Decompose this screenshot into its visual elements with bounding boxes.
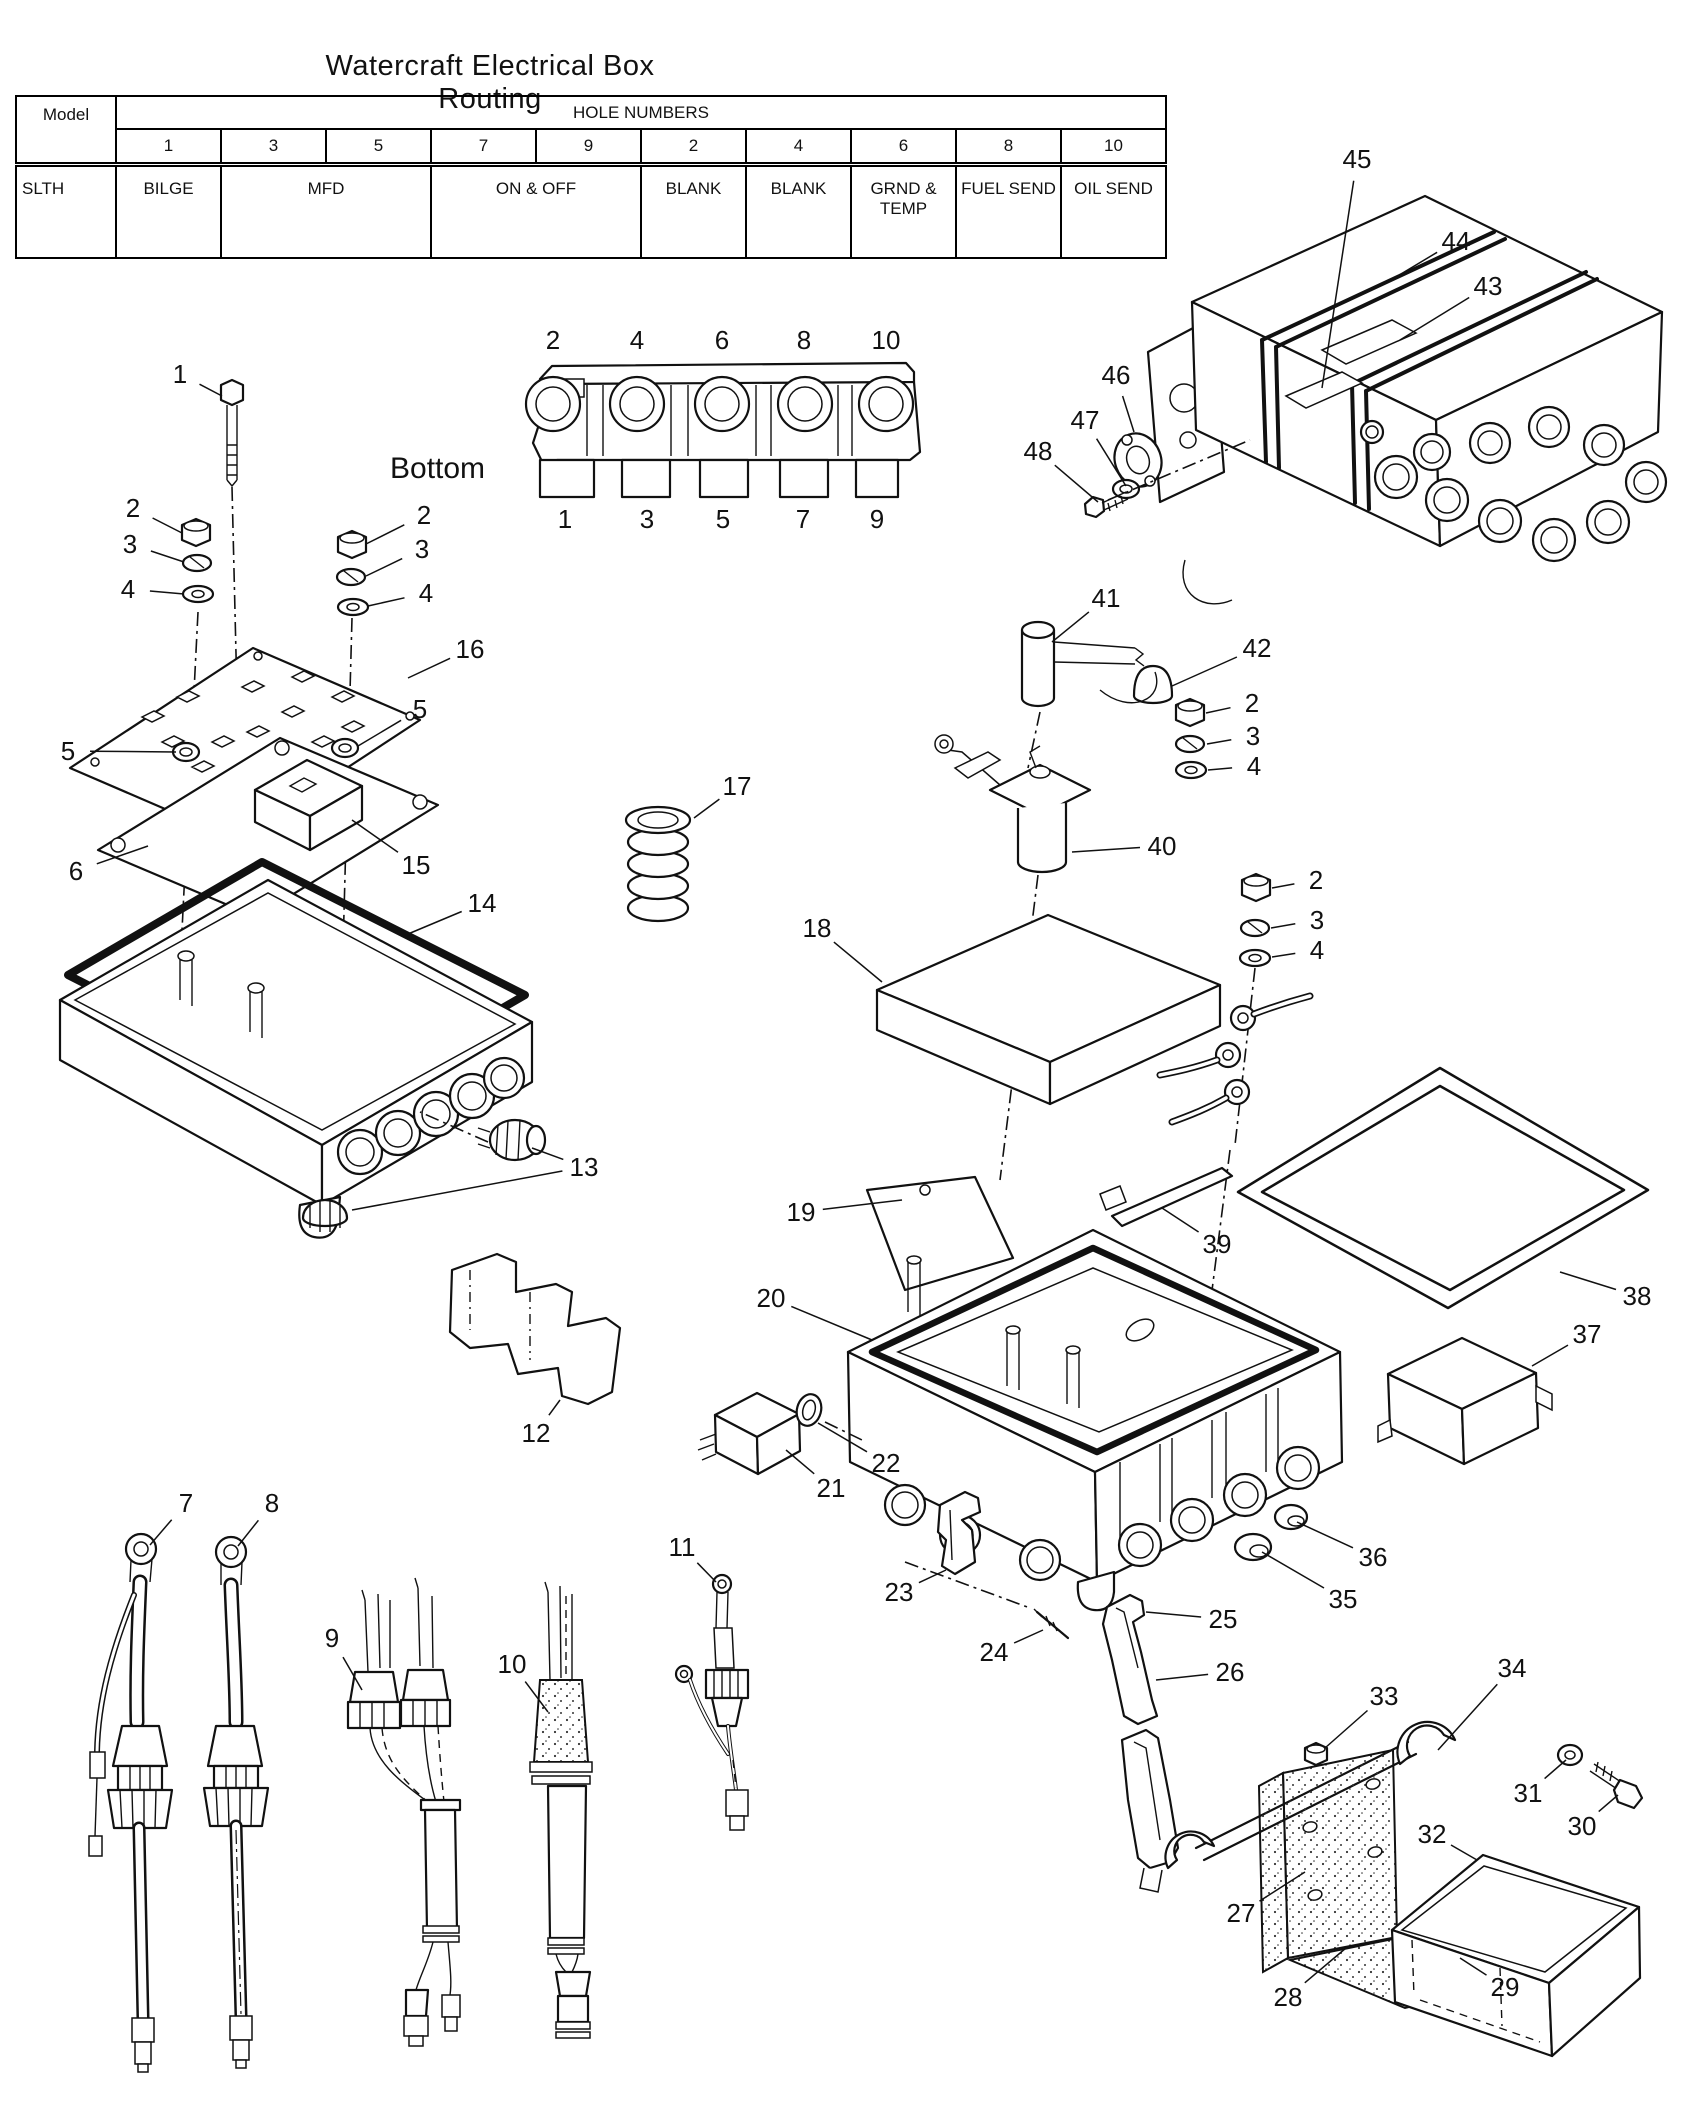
callout-2: 2 bbox=[1245, 688, 1259, 718]
leader-line bbox=[1438, 1684, 1497, 1750]
callout-22: 22 bbox=[872, 1448, 901, 1478]
callout-10: 10 bbox=[498, 1649, 527, 1679]
bottom-view-hole-7: 7 bbox=[796, 504, 810, 534]
callout-2: 2 bbox=[126, 493, 140, 523]
cables-group bbox=[89, 1534, 748, 2072]
callout-12: 12 bbox=[522, 1418, 551, 1448]
callout-6: 6 bbox=[69, 856, 83, 886]
nut-33 bbox=[1305, 1743, 1327, 1765]
callout-32: 32 bbox=[1418, 1819, 1447, 1849]
callout-26: 26 bbox=[1216, 1657, 1245, 1687]
leader-line bbox=[786, 1450, 814, 1474]
exploded-diagram: Bottom 24681013579 bbox=[0, 0, 1700, 2111]
callout-24: 24 bbox=[980, 1637, 1009, 1667]
leader-line bbox=[1052, 612, 1089, 642]
callout-42: 42 bbox=[1243, 633, 1272, 663]
callout-13: 13 bbox=[570, 1152, 599, 1182]
callout-17: 17 bbox=[723, 771, 752, 801]
nut-washer-stack-c bbox=[1176, 699, 1206, 778]
bottom-view-label: Bottom bbox=[390, 452, 485, 485]
callout-34: 34 bbox=[1498, 1653, 1527, 1683]
callout-2: 2 bbox=[1309, 865, 1323, 895]
callout-11: 11 bbox=[669, 1532, 696, 1562]
callout-19: 19 bbox=[787, 1197, 816, 1227]
callout-44: 44 bbox=[1442, 226, 1471, 256]
bottom-view-hole-3: 3 bbox=[640, 504, 654, 534]
callout-46: 46 bbox=[1102, 360, 1131, 390]
callout-33: 33 bbox=[1370, 1681, 1399, 1711]
leader-line bbox=[150, 1520, 172, 1545]
callout-48: 48 bbox=[1024, 436, 1053, 466]
callout-14: 14 bbox=[468, 888, 497, 918]
bottom-view-hole-6: 6 bbox=[715, 325, 729, 355]
box-bracket-hook bbox=[1183, 560, 1232, 604]
leader-line bbox=[1208, 768, 1232, 770]
callout-21: 21 bbox=[817, 1473, 846, 1503]
leader-line bbox=[834, 942, 882, 982]
leader-line bbox=[1207, 740, 1231, 744]
bottom-view-hole-2: 2 bbox=[546, 325, 560, 355]
bellows-17 bbox=[626, 807, 690, 921]
callout-4: 4 bbox=[419, 578, 433, 608]
callout-30: 30 bbox=[1568, 1811, 1597, 1841]
grommet-5-left bbox=[173, 743, 199, 761]
leader-line bbox=[90, 751, 176, 752]
bracket-12 bbox=[450, 1254, 620, 1404]
callout-8: 8 bbox=[265, 1488, 279, 1518]
leader-line bbox=[1599, 1795, 1618, 1812]
washer-31 bbox=[1558, 1745, 1582, 1765]
callout-27: 27 bbox=[1227, 1898, 1256, 1928]
leader-line bbox=[408, 912, 462, 935]
leader-line bbox=[1172, 657, 1237, 686]
bolt-1 bbox=[221, 380, 243, 486]
pcb-exploded-group bbox=[60, 380, 620, 1404]
solenoid-40 bbox=[935, 735, 1090, 872]
bottom-view-hole-5: 5 bbox=[716, 504, 730, 534]
callout-5: 5 bbox=[61, 736, 75, 766]
lid-gasket-38 bbox=[1238, 1068, 1648, 1308]
bolt-30 bbox=[1590, 1762, 1642, 1808]
diagram-page: Watercraft Electrical Box Routing Model … bbox=[0, 0, 1700, 2111]
strap-25 bbox=[1103, 1595, 1157, 1724]
knob-13a bbox=[478, 1120, 545, 1160]
leader-line bbox=[366, 525, 404, 544]
leader-line bbox=[153, 518, 182, 533]
callout-40: 40 bbox=[1148, 831, 1177, 861]
bottom-view-hole-1: 1 bbox=[558, 504, 572, 534]
callout-41: 41 bbox=[1092, 583, 1121, 613]
callout-7: 7 bbox=[179, 1488, 193, 1518]
plug-36 bbox=[1275, 1505, 1307, 1529]
cdi-box-37 bbox=[1378, 1338, 1552, 1464]
leader-line bbox=[1545, 1760, 1566, 1779]
leader-line bbox=[366, 559, 402, 576]
leader-line bbox=[1271, 924, 1295, 928]
bottom-view-hole-9: 9 bbox=[870, 504, 884, 534]
callout-36: 36 bbox=[1359, 1542, 1388, 1572]
callout-3: 3 bbox=[1310, 905, 1324, 935]
leader-line bbox=[1451, 1845, 1477, 1860]
callout-9: 9 bbox=[325, 1623, 339, 1653]
leader-line bbox=[150, 591, 184, 594]
callout-4: 4 bbox=[1247, 751, 1261, 781]
leader-line bbox=[408, 658, 450, 678]
plug-35 bbox=[1235, 1534, 1271, 1560]
battery-cable-8 bbox=[204, 1537, 268, 2068]
callout-31: 31 bbox=[1514, 1778, 1543, 1808]
cover-plate-19 bbox=[867, 1177, 1013, 1290]
nut-washer-stack-right bbox=[337, 531, 368, 615]
box-corner-foot bbox=[1078, 1572, 1114, 1610]
battery-cable-7 bbox=[89, 1534, 172, 2072]
leader-line bbox=[1532, 1345, 1568, 1366]
wire-11 bbox=[676, 1575, 748, 1830]
callout-3: 3 bbox=[123, 529, 137, 559]
leader-line bbox=[368, 598, 405, 606]
leader-line bbox=[1055, 465, 1098, 502]
callout-29: 29 bbox=[1491, 1972, 1520, 2002]
callout-3: 3 bbox=[1246, 721, 1260, 751]
leader-line bbox=[238, 1520, 258, 1546]
callout-45: 45 bbox=[1343, 144, 1372, 174]
bottom-view-hole-10: 10 bbox=[872, 325, 901, 355]
callout-25: 25 bbox=[1209, 1604, 1238, 1634]
callout-38: 38 bbox=[1623, 1281, 1652, 1311]
callout-23: 23 bbox=[885, 1577, 914, 1607]
box-base-lower bbox=[60, 880, 532, 1238]
assembled-electrical-box bbox=[1085, 196, 1666, 703]
callout-39: 39 bbox=[1203, 1229, 1232, 1259]
leader-line bbox=[1162, 1208, 1199, 1232]
harness-9 bbox=[348, 1578, 460, 2046]
manifold-bottom-view: Bottom 24681013579 bbox=[390, 325, 920, 534]
screw-24 bbox=[1034, 1609, 1068, 1638]
leader-line bbox=[1272, 884, 1294, 888]
leader-line bbox=[1297, 1522, 1353, 1548]
callout-37: 37 bbox=[1573, 1319, 1602, 1349]
leader-line bbox=[1206, 708, 1231, 713]
leader-line bbox=[694, 799, 719, 818]
callout-35: 35 bbox=[1329, 1584, 1358, 1614]
battery-tray-29 bbox=[1392, 1855, 1640, 2056]
callout-1: 1 bbox=[173, 359, 187, 389]
leader-line bbox=[1072, 848, 1140, 853]
bottom-view-hole-8: 8 bbox=[797, 325, 811, 355]
clamp-34 bbox=[1397, 1722, 1455, 1764]
callout-47: 47 bbox=[1071, 405, 1100, 435]
leader-line bbox=[1146, 1612, 1201, 1617]
callout-3: 3 bbox=[415, 534, 429, 564]
callout-16: 16 bbox=[456, 634, 485, 664]
callout-4: 4 bbox=[121, 574, 135, 604]
leader-line bbox=[1262, 1552, 1324, 1588]
callout-4: 4 bbox=[1310, 935, 1324, 965]
leader-line bbox=[1272, 953, 1295, 957]
bottom-view-hole-4: 4 bbox=[630, 325, 644, 355]
leader-line bbox=[1325, 1711, 1368, 1749]
bracket-mount-group bbox=[1166, 1722, 1642, 2056]
harness-10 bbox=[530, 1582, 592, 2038]
callout-5: 5 bbox=[413, 694, 427, 724]
callout-20: 20 bbox=[757, 1283, 786, 1313]
nut-washer-stack-d bbox=[1240, 874, 1270, 966]
nut-washer-stack-left bbox=[182, 519, 213, 602]
leader-line bbox=[1014, 1630, 1043, 1643]
leader-line bbox=[200, 384, 223, 396]
leader-line bbox=[549, 1400, 560, 1415]
leader-line bbox=[352, 1171, 562, 1210]
callout-15: 15 bbox=[402, 850, 431, 880]
rubber-cap-42 bbox=[1134, 666, 1172, 703]
callout-28: 28 bbox=[1274, 1982, 1303, 2012]
callout-18: 18 bbox=[803, 913, 832, 943]
leader-line bbox=[1560, 1272, 1616, 1290]
callout-43: 43 bbox=[1474, 271, 1503, 301]
leader-line bbox=[1156, 1674, 1208, 1680]
leader-line bbox=[151, 551, 184, 562]
callout-2: 2 bbox=[417, 500, 431, 530]
relay-21 bbox=[698, 1393, 800, 1474]
leader-line bbox=[697, 1563, 716, 1582]
clamp-strip-39 bbox=[1100, 1168, 1232, 1226]
manifold-tabs-odd bbox=[540, 460, 898, 497]
grommet-5-right bbox=[332, 739, 358, 757]
leader-line bbox=[791, 1306, 872, 1340]
leader-line bbox=[1123, 396, 1134, 432]
